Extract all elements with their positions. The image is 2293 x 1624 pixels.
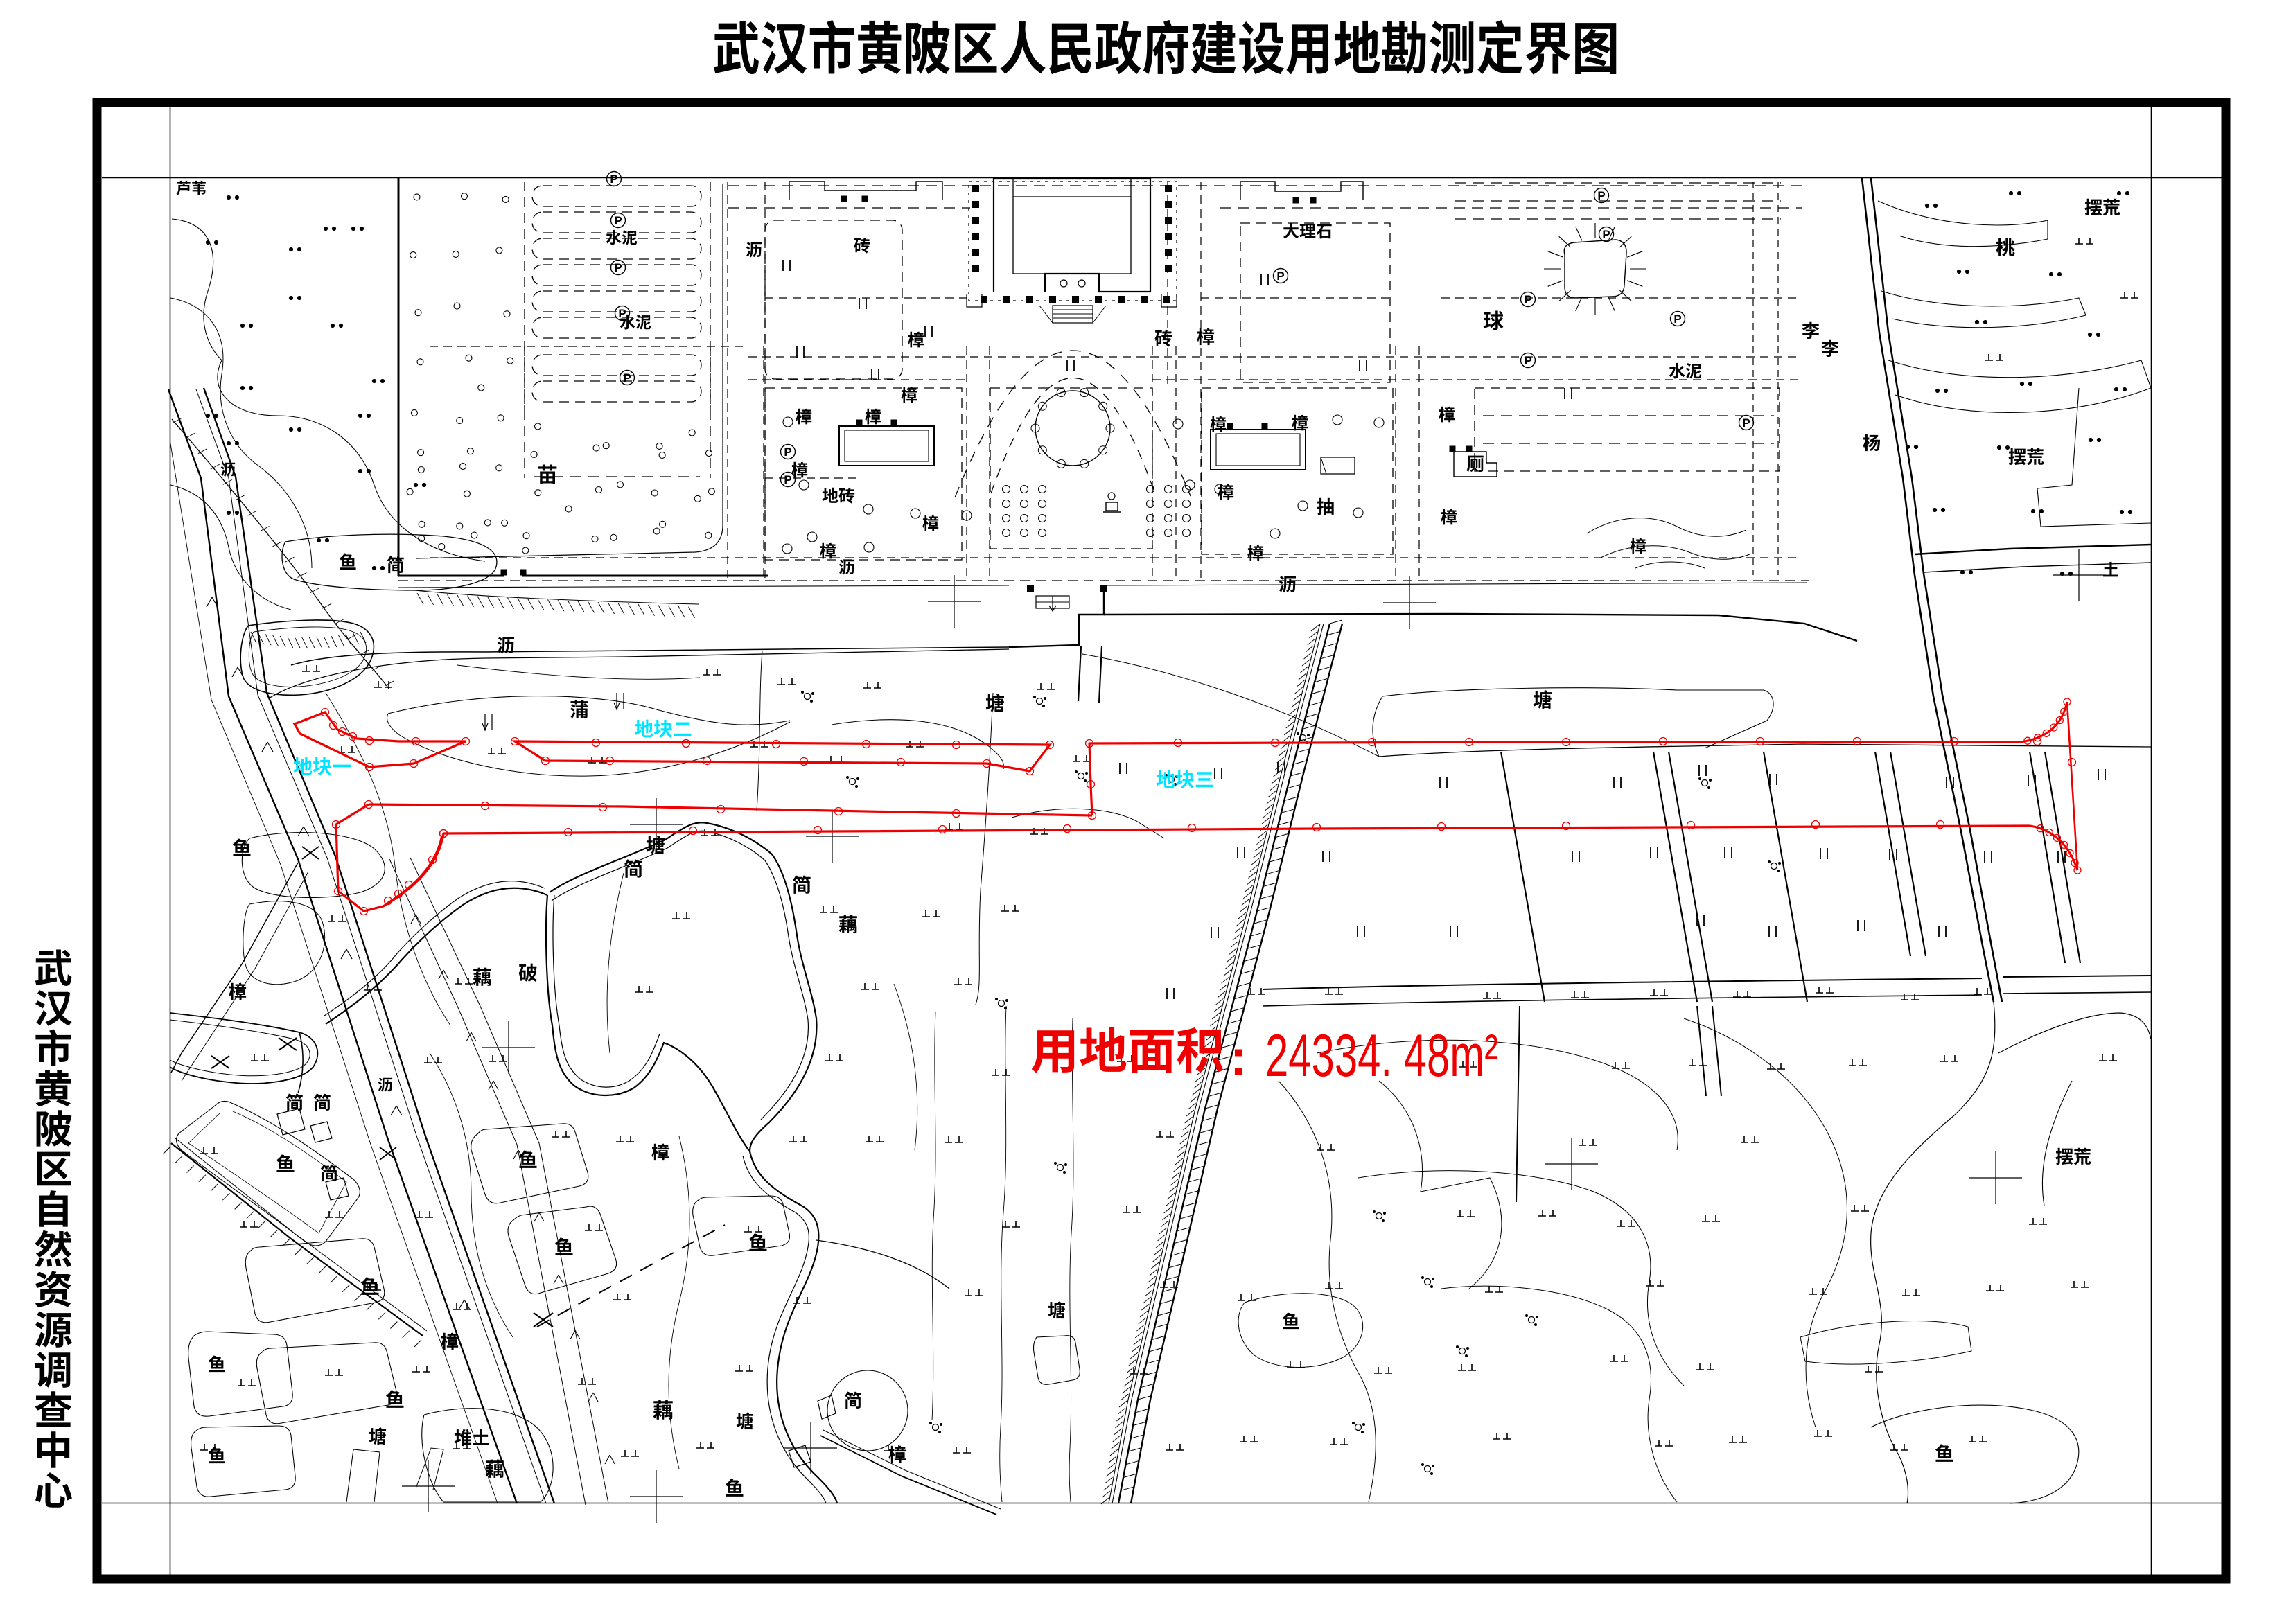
svg-text:P: P [784, 473, 791, 486]
svg-text:24334. 48m²: 24334. 48m² [1265, 1023, 1498, 1089]
svg-text:P: P [1673, 312, 1681, 326]
svg-text:P: P [618, 307, 626, 320]
svg-text:P: P [1524, 354, 1531, 367]
svg-text:P: P [784, 445, 791, 459]
svg-text:P: P [614, 214, 622, 227]
svg-text:P: P [623, 371, 631, 385]
svg-text:P: P [1597, 189, 1605, 202]
svg-text:P: P [1276, 270, 1284, 283]
svg-text:P: P [610, 173, 617, 186]
svg-text:P: P [614, 261, 622, 274]
svg-text:P: P [1524, 293, 1531, 306]
svg-text:P: P [1742, 416, 1750, 430]
svg-text::: : [1230, 1030, 1247, 1086]
